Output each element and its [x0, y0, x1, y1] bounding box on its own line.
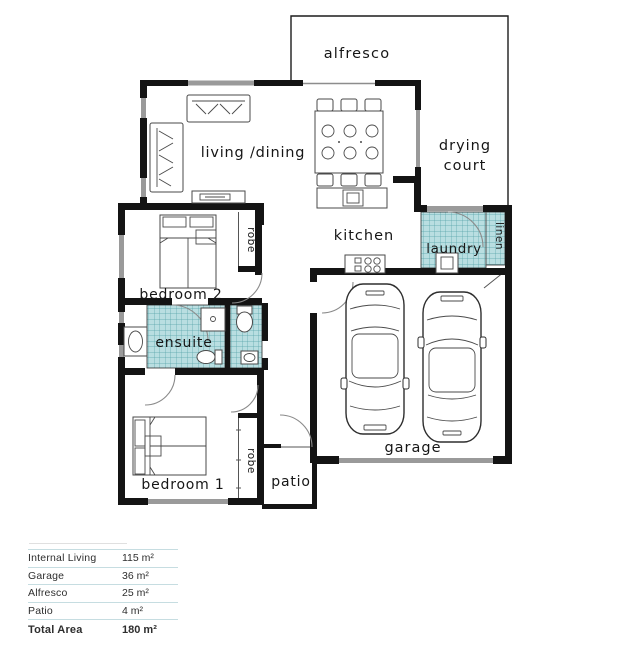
toilet	[237, 306, 253, 332]
label-bedroom1: bedroom 1	[141, 477, 224, 493]
area-label: Total Area	[28, 624, 122, 636]
toilet	[197, 350, 222, 364]
window	[427, 206, 483, 211]
label-living-dining: living /dining	[201, 145, 306, 161]
window	[119, 345, 124, 357]
area-label: Patio	[28, 605, 122, 617]
label-ensuite: ensuite	[155, 335, 212, 351]
label-alfresco: alfresco	[324, 46, 391, 62]
area-value: 36 m²	[122, 570, 178, 582]
area-value: 180 m²	[122, 624, 178, 636]
area-value: 4 m²	[122, 605, 178, 617]
label-laundry: laundry	[426, 241, 481, 257]
window	[141, 98, 146, 118]
window	[416, 110, 420, 167]
car	[418, 292, 486, 442]
table-row: Alfresco 25 m²	[28, 585, 178, 603]
window	[188, 81, 254, 86]
area-value: 25 m²	[122, 587, 178, 599]
patio-door	[280, 415, 312, 447]
label-linen: linen	[493, 222, 505, 250]
divider	[29, 543, 127, 544]
sofa	[150, 123, 183, 192]
kitchen-island	[317, 188, 387, 208]
label-drying-court-1: drying	[439, 138, 491, 154]
area-label: Alfresco	[28, 587, 122, 599]
dining-setting	[315, 99, 383, 186]
table-row: Garage 36 m²	[28, 568, 178, 586]
kitchen-bench-cooktop	[345, 255, 385, 273]
areas-table: Internal Living 115 m² Garage 36 m² Alfr…	[28, 549, 178, 640]
table-row-total: Total Area 180 m²	[28, 620, 178, 640]
robe-door	[231, 385, 258, 412]
shower	[201, 308, 225, 331]
window	[119, 312, 124, 323]
robe-partition	[236, 418, 241, 498]
basin	[241, 351, 258, 364]
sofa	[187, 95, 250, 122]
table-row: Internal Living 115 m²	[28, 550, 178, 568]
floor-plan-page: alfresco living /dining drying court kit…	[0, 0, 637, 650]
car	[341, 284, 409, 434]
vanity-basin	[124, 327, 147, 356]
label-drying-court-2: court	[444, 158, 487, 174]
area-value: 115 m²	[122, 552, 178, 564]
garage-door	[339, 458, 493, 463]
label-garage: garage	[384, 440, 441, 456]
label-patio: patio	[271, 474, 310, 490]
area-label: Internal Living	[28, 552, 122, 564]
table-row: Patio 4 m²	[28, 603, 178, 621]
window	[141, 178, 146, 197]
label-robe-bed1: robe	[245, 448, 257, 474]
bedroom1-door	[145, 375, 175, 405]
bed	[160, 215, 216, 288]
label-robe-bed2: robe	[245, 227, 257, 253]
window	[119, 235, 124, 278]
tv-unit	[192, 191, 245, 203]
window	[148, 499, 228, 504]
area-label: Garage	[28, 570, 122, 582]
bed	[133, 417, 206, 475]
label-bedroom2: bedroom 2	[139, 287, 222, 303]
label-kitchen: kitchen	[334, 228, 394, 244]
